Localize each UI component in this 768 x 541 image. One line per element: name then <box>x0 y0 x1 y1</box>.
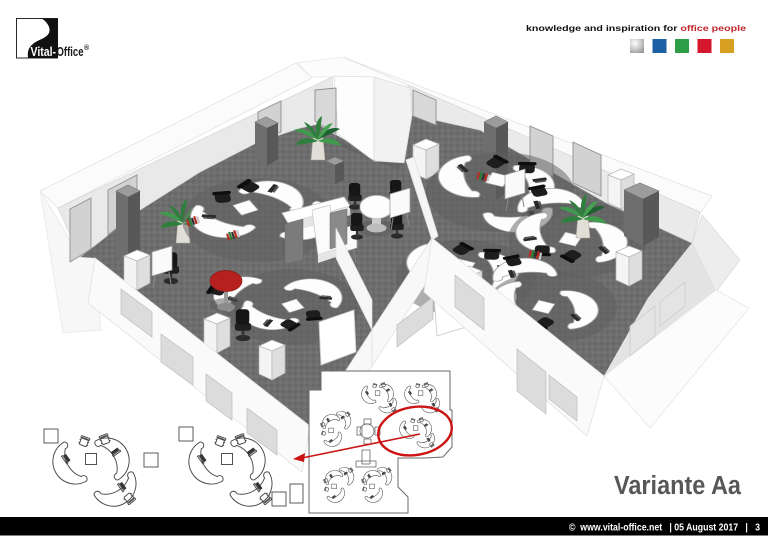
svg-text:© www.vital-office.net | 05: © www.vital-office.net | 05 August 2017 … <box>569 523 760 534</box>
svg-text:Vital-: Vital- <box>31 45 57 59</box>
svg-text:knowledge and inspiration for: knowledge and inspiration for office peo… <box>526 24 747 33</box>
svg-text:Office: Office <box>57 45 84 59</box>
svg-text:Variante Aa: Variante Aa <box>614 472 742 500</box>
svg-text:®: ® <box>84 44 90 52</box>
